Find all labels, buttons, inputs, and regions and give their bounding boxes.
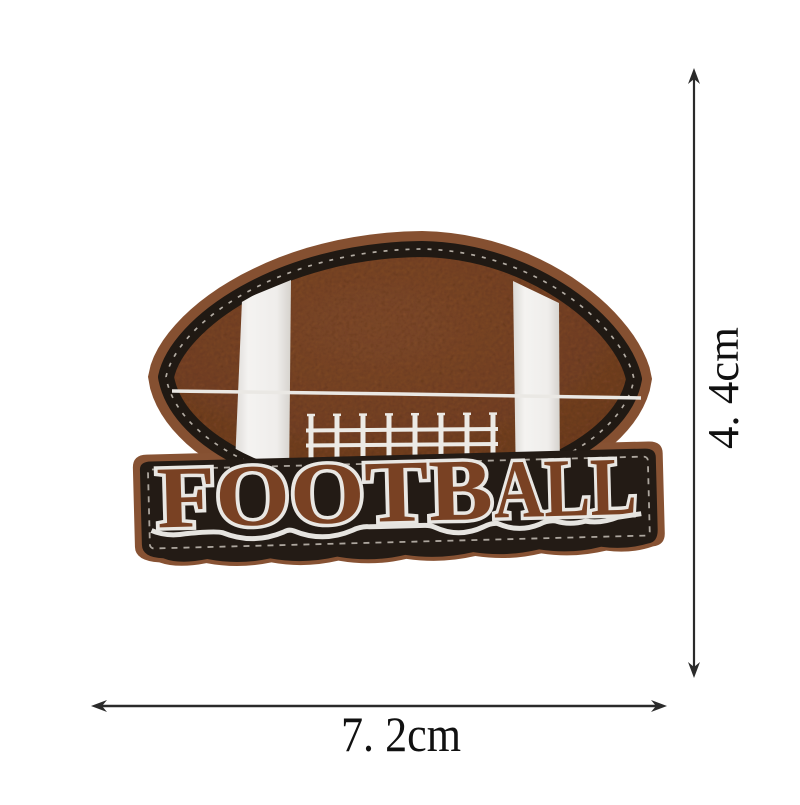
svg-text:4. 4cm: 4. 4cm: [699, 327, 748, 449]
svg-text:7. 2cm: 7. 2cm: [341, 706, 461, 762]
